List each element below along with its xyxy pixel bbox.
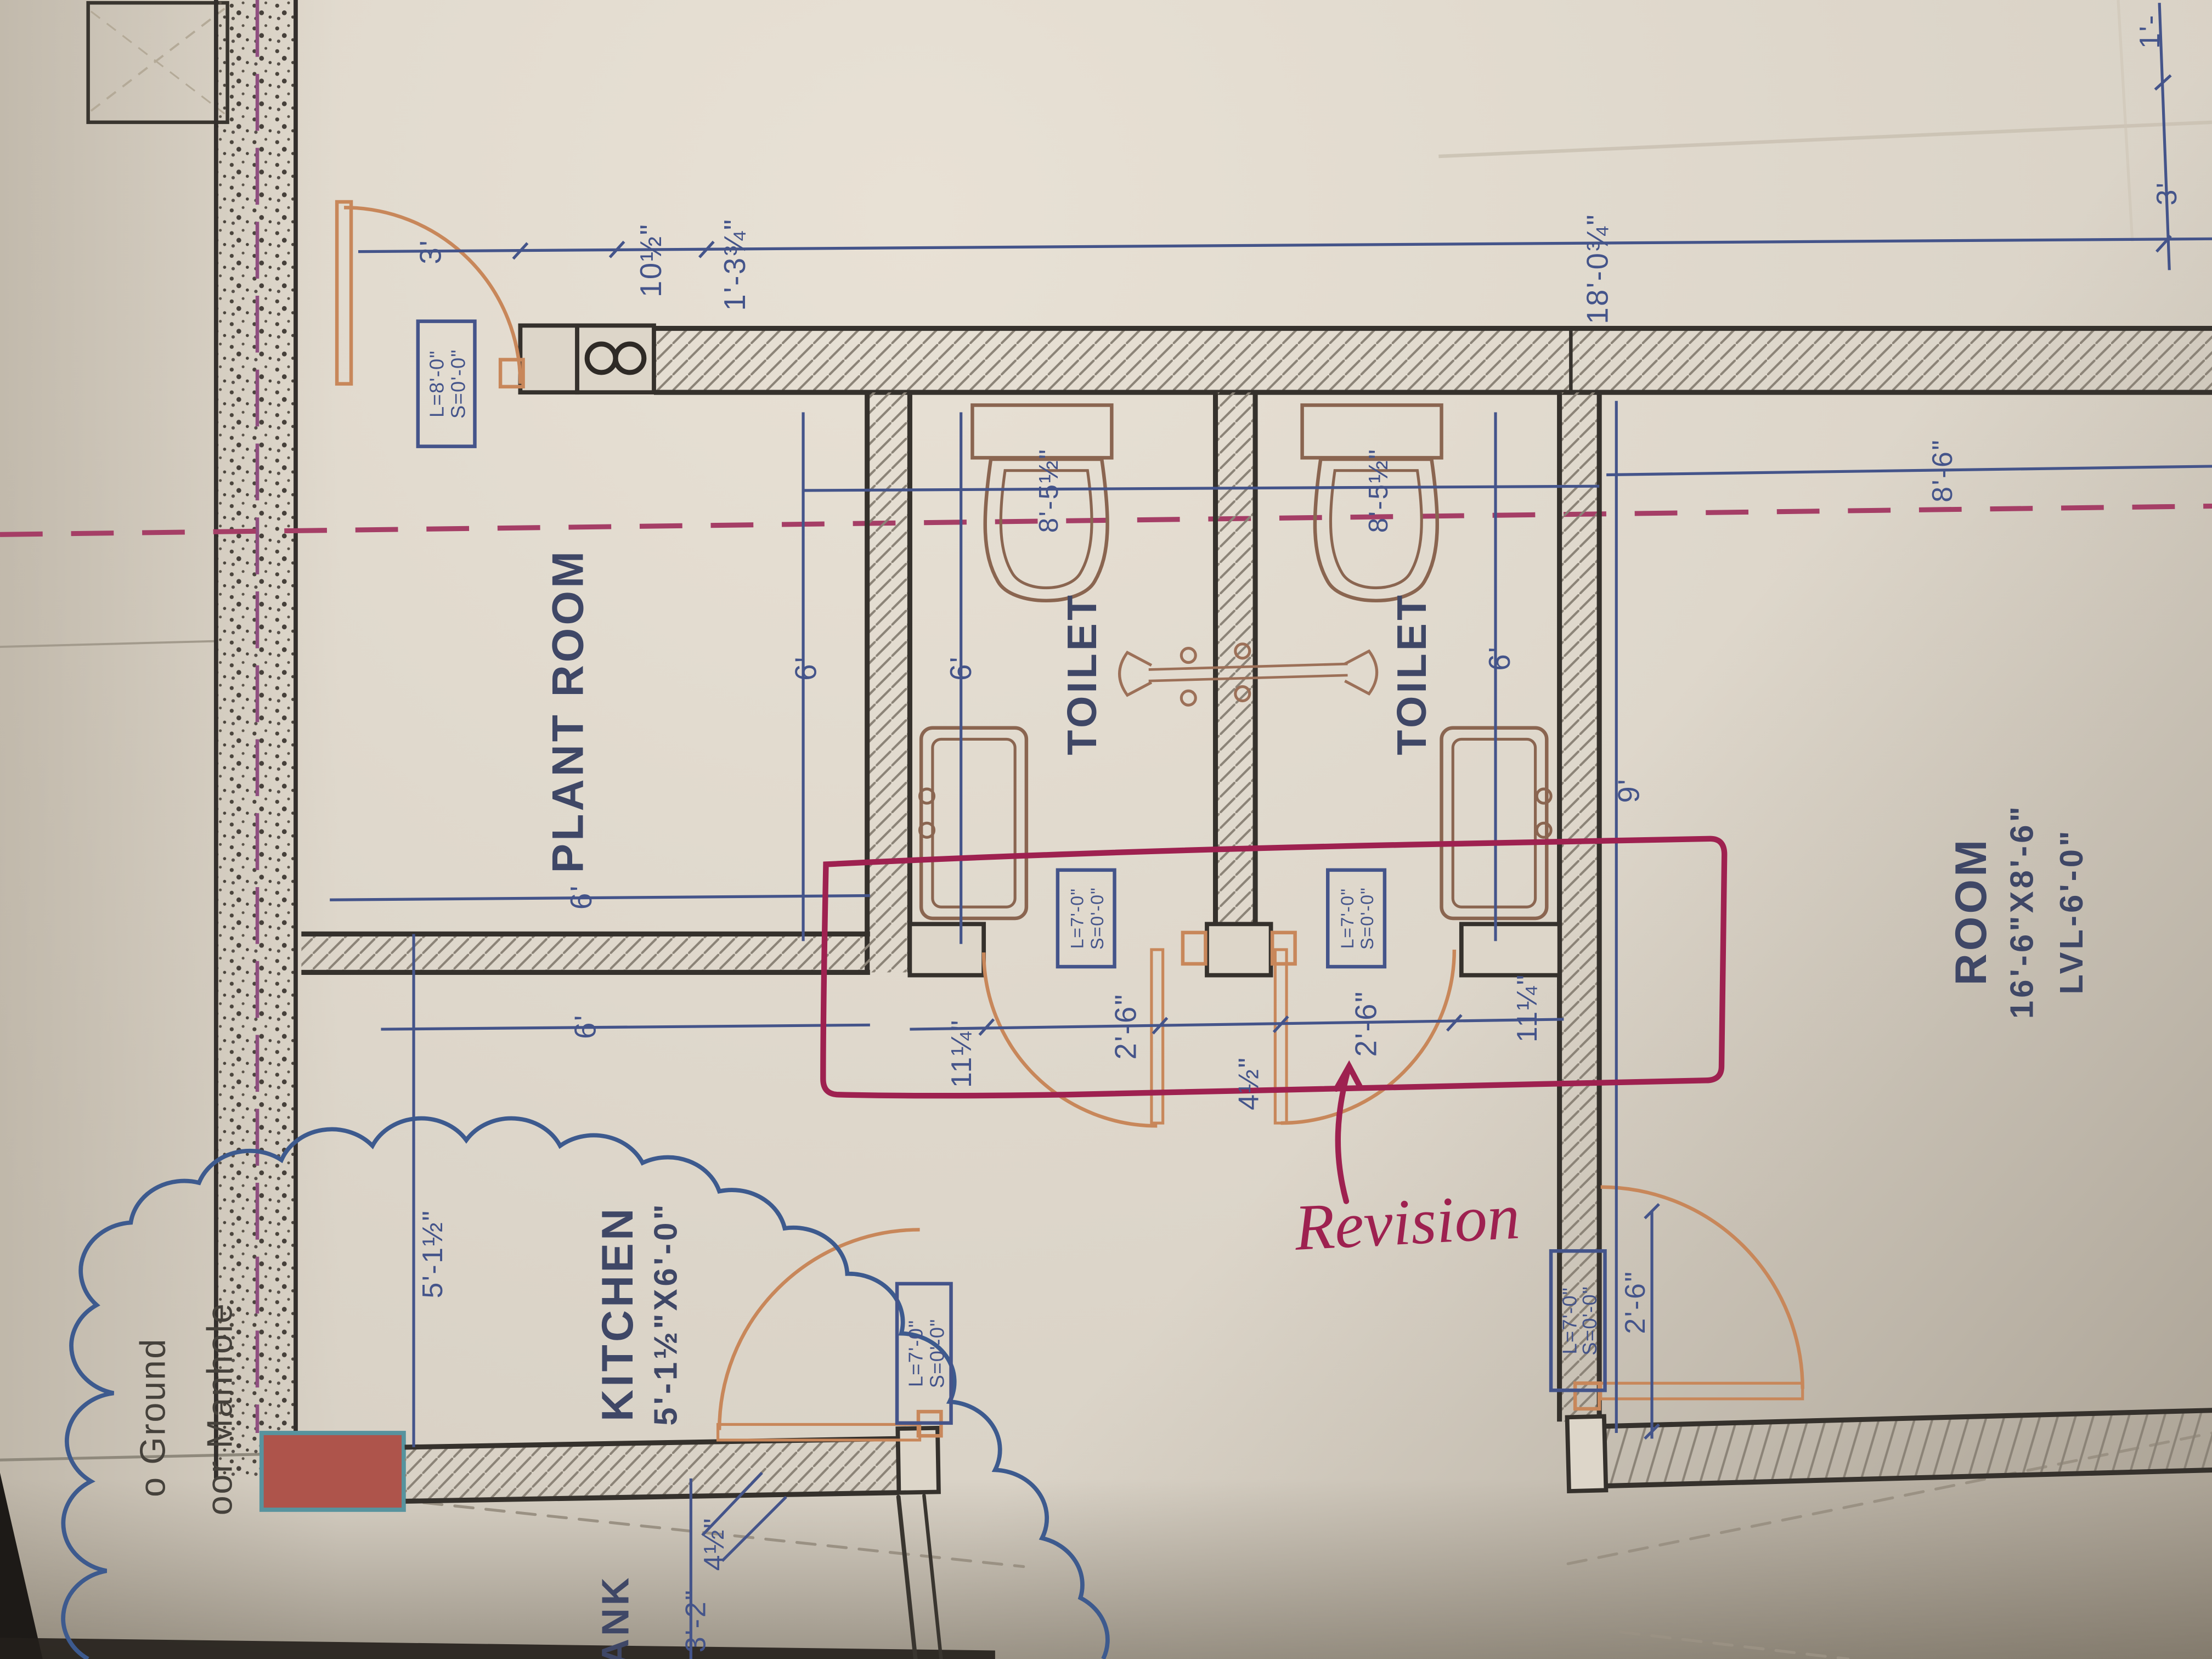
dim-top-1-3-3q: 1'-3¾": [718, 218, 752, 311]
dim-right-3ft: 3': [2151, 181, 2182, 205]
toilet-left-label: TOILET: [1059, 592, 1105, 755]
kitchen-label: KITCHEN: [593, 1206, 642, 1421]
door-frame-box: [520, 325, 577, 392]
dim-door-center: 4½": [1232, 1056, 1264, 1110]
room-door-jamb: [1567, 1417, 1606, 1491]
dim-room-door-2-6: 2'-6": [1619, 1271, 1651, 1334]
svg-text:S=0'-0": S=0'-0": [447, 349, 469, 419]
dim-door-left: 2'-6": [1109, 993, 1142, 1059]
wall-top: [654, 329, 2212, 393]
tank-label: ANK: [594, 1575, 636, 1659]
dim-toilet-left-depth: 8'-5½": [1034, 448, 1064, 533]
dim-toilet-6a: 6': [789, 656, 822, 681]
svg-text:S=0'-0": S=0'-0": [1578, 1286, 1601, 1356]
svg-text:L=7'-0": L=7'-0": [1559, 1287, 1581, 1355]
wall-plantroom-south: [301, 934, 870, 972]
dim-kitchen-4half: 4½": [698, 1517, 730, 1571]
plant-room-label: PLANT ROOM: [543, 549, 592, 873]
toilet-right-label: TOILET: [1389, 592, 1435, 755]
svg-text:L=7'-0": L=7'-0": [905, 1320, 927, 1387]
revision-text: Revision: [1293, 1180, 1522, 1264]
kitchen-size-label: 5'-1½"X6'-0": [647, 1201, 684, 1426]
svg-text:S=0'-0": S=0'-0": [1357, 887, 1377, 950]
svg-text:S=0'-0": S=0'-0": [926, 1319, 949, 1389]
floor-plan-drawing: Revision PLANT ROOM TOILET TOILET KITCHE…: [0, 0, 2212, 1659]
room-level-label: LVL-6'-0": [2053, 828, 2090, 994]
paper-background: [0, 0, 2212, 1659]
dim-plant-6b: 6': [569, 1014, 602, 1039]
svg-text:L=8'-0": L=8'-0": [425, 350, 448, 417]
dim-top-3ft: 3': [414, 239, 447, 264]
dim-jamb-right: 11¼": [1511, 973, 1543, 1042]
floor-plan-photo: Revision PLANT ROOM TOILET TOILET KITCHE…: [0, 0, 2212, 1659]
room-label: ROOM: [1946, 837, 1996, 986]
jamb-toilet-center: [1207, 924, 1271, 975]
jamb-toilet-left: [910, 924, 984, 975]
dim-plant-6a: 6': [565, 884, 598, 910]
dim-toilet-right-depth: 8'-5½": [1363, 448, 1393, 533]
dim-toilet-6c: 6': [1483, 646, 1516, 671]
dim-right-1ft: 1'-: [2134, 14, 2165, 49]
wall-room-west: [1560, 392, 1600, 1421]
dim-top-10half: 10½": [634, 223, 668, 297]
svg-text:L=7'-0": L=7'-0": [1338, 888, 1357, 949]
ground-note-line2: oor Manhole: [199, 1302, 239, 1516]
svg-text:S=0'-0": S=0'-0": [1087, 887, 1107, 950]
column-block-red: [262, 1433, 404, 1510]
room-size-label: 16'-6"X8'-6": [2004, 804, 2040, 1019]
dim-kitchen-width: 5'-1½": [416, 1210, 448, 1299]
dim-door-right: 2'-6": [1349, 990, 1383, 1057]
dim-top-18: 18'-0¾": [1581, 213, 1615, 324]
dim-room-8-6: 8'-6": [1926, 439, 1958, 503]
dim-toilet-6b: 6': [944, 656, 978, 681]
wall-toilet-left-west: [867, 392, 910, 972]
jamb-toilet-right: [1462, 924, 1560, 975]
ground-note-line1: o Ground: [133, 1338, 173, 1497]
dim-kitchen-3-2: 3'-2": [679, 1589, 711, 1652]
dim-room-9: 9': [1612, 778, 1646, 803]
svg-text:L=7'-0": L=7'-0": [1068, 888, 1087, 949]
dim-jamb-left: 11¼": [945, 1019, 977, 1088]
